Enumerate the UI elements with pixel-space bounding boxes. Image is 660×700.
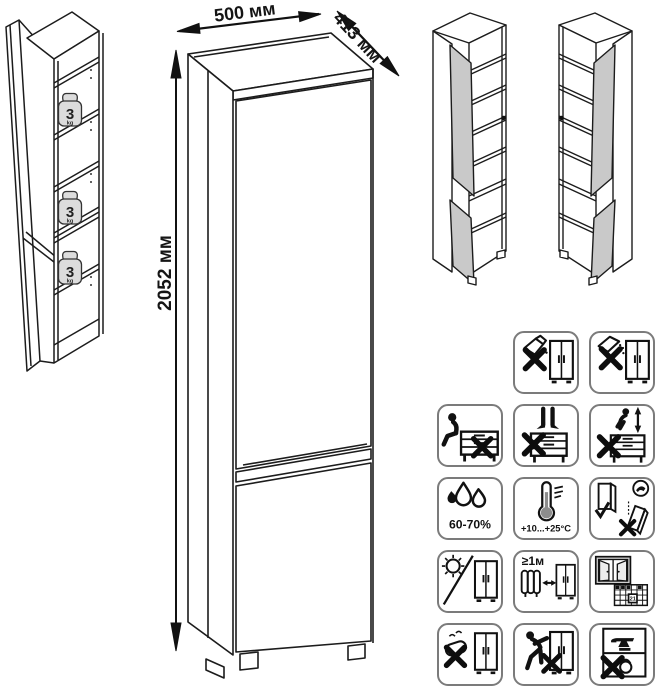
no-sitting-icon xyxy=(439,406,501,465)
door-open-right-view xyxy=(559,13,632,285)
height-dimension-label: 2052 мм xyxy=(155,227,177,319)
svg-text:+10...+25°C: +10...+25°C xyxy=(521,523,571,533)
care-cell-no-liquids xyxy=(513,331,579,394)
care-cell-no-overload xyxy=(589,623,655,686)
ventilate-room-icon: 21 xyxy=(591,552,653,611)
main-cabinet-view xyxy=(188,33,373,678)
no-jumping-icon xyxy=(591,406,653,465)
care-cell-keep-upright xyxy=(589,477,655,540)
care-cell-no-jumping xyxy=(589,404,655,467)
care-cell-no-standing xyxy=(513,404,579,467)
care-cell-humidity: 60-70% xyxy=(437,477,503,540)
care-cell-no-powder xyxy=(589,331,655,394)
svg-text:21: 21 xyxy=(630,597,636,603)
care-cell-no-dragging xyxy=(513,623,579,686)
care-cell-no-sunlight xyxy=(437,550,503,613)
no-standing-icon xyxy=(515,406,577,465)
no-overload-icon xyxy=(591,625,653,684)
care-icon-grid: 60-70% +10...+25°C xyxy=(437,331,655,686)
door-open-left-view xyxy=(433,13,506,285)
temperature-icon: +10...+25°C xyxy=(515,479,577,538)
product-spec-sheet: 3 kg 3 kg 3 kg xyxy=(0,0,660,700)
care-cell-no-abrasive xyxy=(437,623,503,686)
open-cabinet-interior-view xyxy=(6,12,103,371)
svg-text:kg: kg xyxy=(67,219,73,225)
heat-distance-icon: ≥1м xyxy=(515,552,577,611)
care-cell-ventilation: 21 xyxy=(589,550,655,613)
svg-text:60-70%: 60-70% xyxy=(449,518,491,532)
care-cell-heat-distance: ≥1м xyxy=(513,550,579,613)
svg-text:≥1м: ≥1м xyxy=(522,554,544,568)
svg-text:kg: kg xyxy=(67,279,73,285)
humidity-icon: 60-70% xyxy=(439,479,501,538)
no-spilling-powder-icon xyxy=(591,333,653,392)
keep-upright-icon xyxy=(591,479,653,538)
no-pouring-liquid-icon xyxy=(515,333,577,392)
height-dimension-arrow xyxy=(171,50,181,651)
svg-text:kg: kg xyxy=(67,121,73,127)
care-cell-temperature: +10...+25°C xyxy=(513,477,579,540)
no-dragging-icon xyxy=(515,625,577,684)
no-abrasive-cleaning-icon xyxy=(439,625,501,684)
care-cell-no-sitting xyxy=(437,404,503,467)
no-direct-sunlight-icon xyxy=(439,552,501,611)
